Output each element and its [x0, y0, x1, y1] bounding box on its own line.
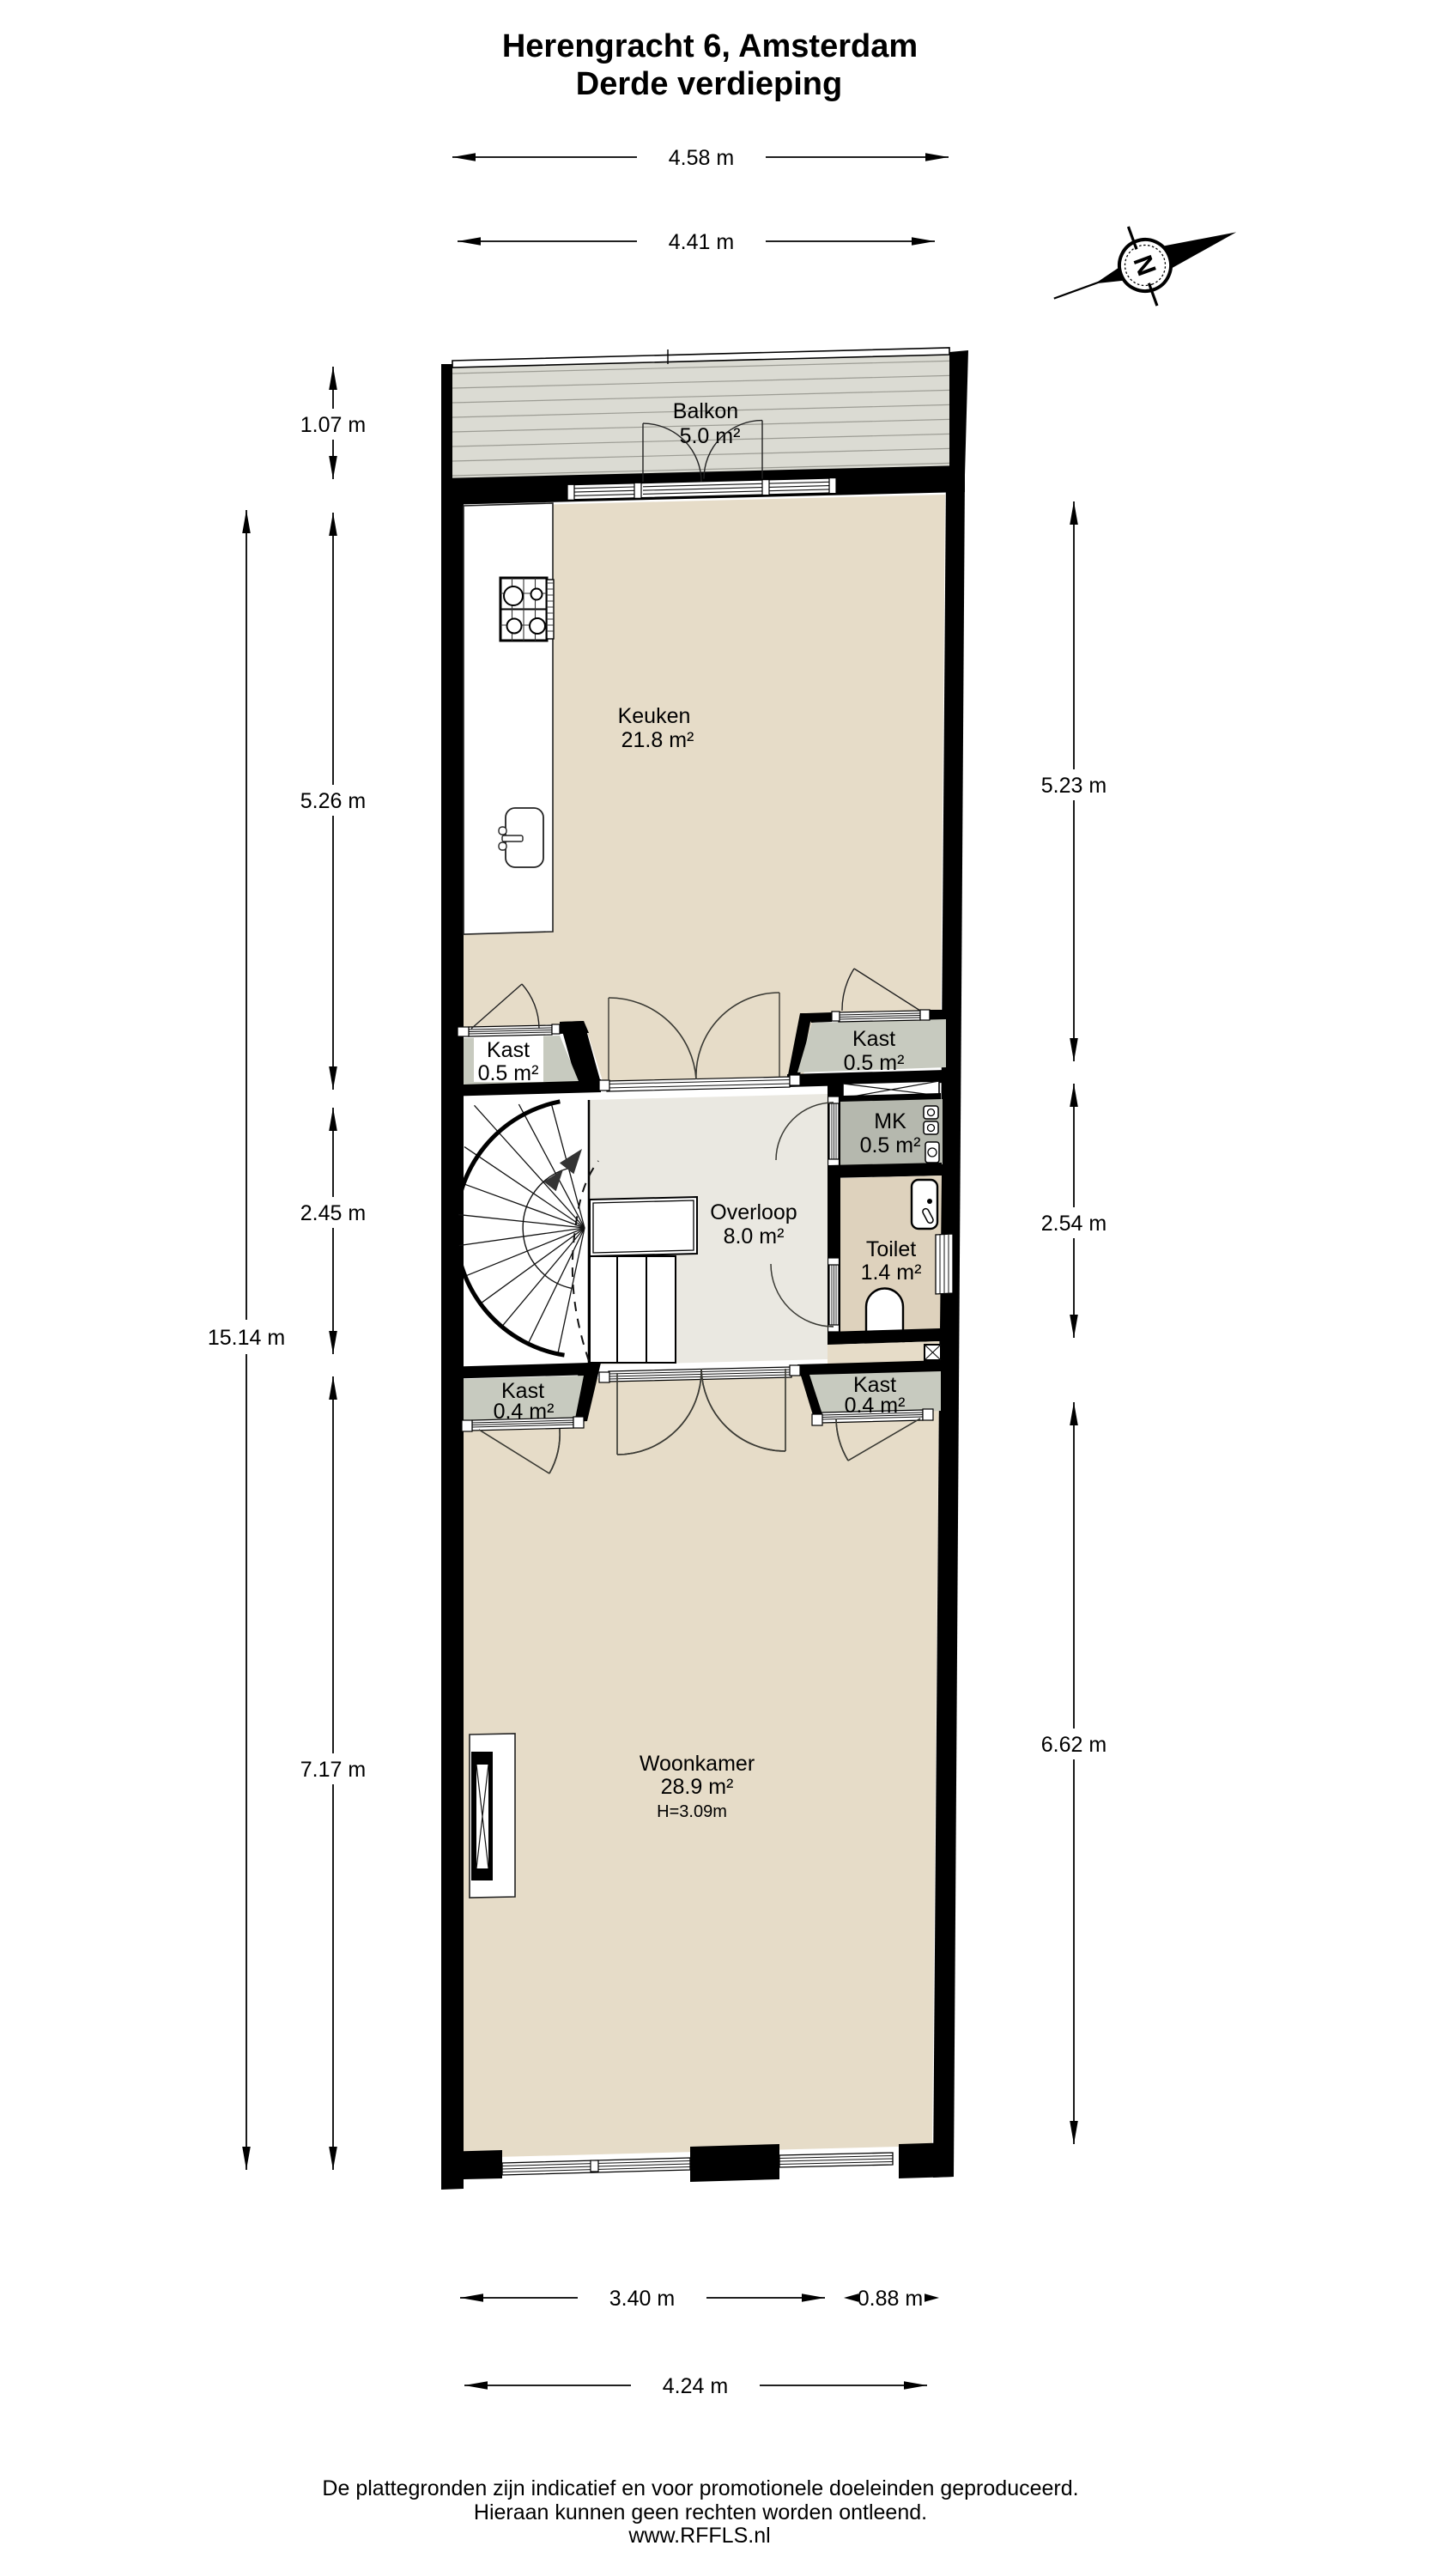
- svg-text:0.88 m: 0.88 m: [858, 2287, 923, 2311]
- svg-text:3.40 m: 3.40 m: [609, 2287, 675, 2311]
- svg-text:Kast: Kast: [487, 1038, 530, 1062]
- svg-text:8.0 m²: 8.0 m²: [724, 1224, 785, 1249]
- svg-text:2.54 m: 2.54 m: [1041, 1212, 1106, 1236]
- svg-text:4.41 m: 4.41 m: [669, 230, 734, 254]
- svg-text:www.RFFLS.nl: www.RFFLS.nl: [627, 2524, 770, 2548]
- svg-text:Herengracht 6, Amsterdam: Herengracht 6, Amsterdam: [502, 28, 918, 64]
- svg-text:4.58 m: 4.58 m: [669, 146, 734, 170]
- svg-text:Balkon: Balkon: [673, 399, 738, 423]
- svg-text:6.62 m: 6.62 m: [1041, 1733, 1106, 1757]
- svg-text:0.5 m²: 0.5 m²: [860, 1133, 921, 1157]
- svg-text:De plattegronden zijn indicati: De plattegronden zijn indicatief en voor…: [322, 2476, 1078, 2500]
- svg-text:Derde verdieping: Derde verdieping: [576, 66, 842, 102]
- svg-text:1.4 m²: 1.4 m²: [861, 1261, 922, 1285]
- svg-text:Overloop: Overloop: [710, 1200, 797, 1224]
- svg-text:Kast: Kast: [852, 1027, 895, 1051]
- svg-text:5.23 m: 5.23 m: [1041, 774, 1106, 798]
- svg-text:MK: MK: [874, 1109, 906, 1133]
- svg-text:Woonkamer: Woonkamer: [640, 1752, 755, 1776]
- svg-text:15.14 m: 15.14 m: [208, 1326, 285, 1350]
- svg-text:4.24 m: 4.24 m: [663, 2374, 728, 2398]
- svg-text:21.8 m²: 21.8 m²: [621, 728, 694, 752]
- svg-text:0.5 m²: 0.5 m²: [844, 1051, 905, 1075]
- svg-text:Keuken: Keuken: [618, 704, 691, 728]
- svg-text:2.45 m: 2.45 m: [300, 1201, 366, 1225]
- svg-text:Hieraan kunnen geen rechten wo: Hieraan kunnen geen rechten worden ontle…: [474, 2500, 927, 2524]
- svg-text:7.17 m: 7.17 m: [300, 1758, 366, 1782]
- svg-text:28.9 m²: 28.9 m²: [661, 1775, 734, 1799]
- svg-text:1.07 m: 1.07 m: [300, 413, 366, 437]
- svg-text:Toilet: Toilet: [866, 1237, 916, 1261]
- svg-text:H=3.09m: H=3.09m: [657, 1802, 727, 1821]
- svg-text:5.26 m: 5.26 m: [300, 789, 366, 813]
- svg-text:0.5 m²: 0.5 m²: [478, 1061, 539, 1085]
- svg-text:0.4 m²: 0.4 m²: [845, 1394, 906, 1418]
